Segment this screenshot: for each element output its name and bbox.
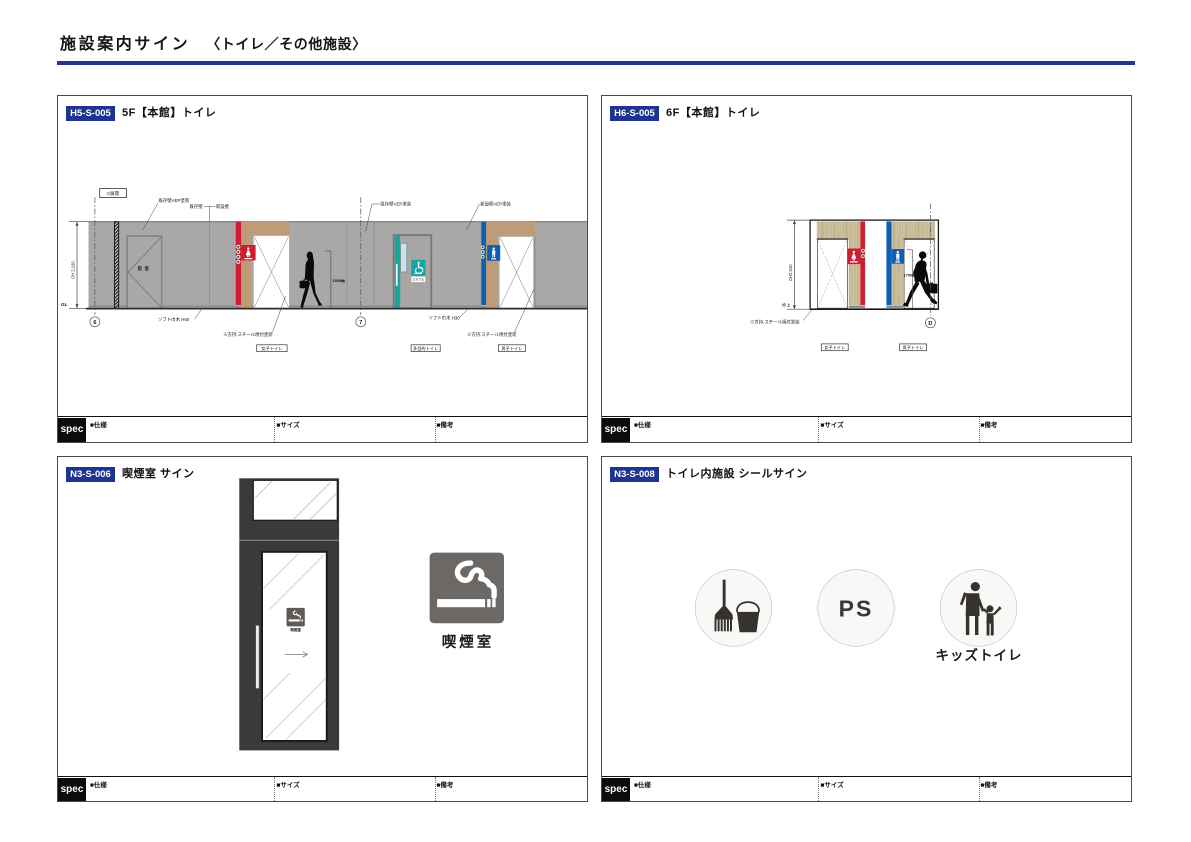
svg-text:1750㎜: 1750㎜ — [904, 273, 916, 277]
svg-text:CH2,640: CH2,640 — [788, 264, 793, 281]
svg-text:既存壁AEP塗装: 既存壁AEP塗装 — [380, 201, 411, 208]
svg-text:ソフト巾木 H30: ソフト巾木 H30 — [429, 315, 461, 322]
svg-text:喫煙室: 喫煙室 — [290, 627, 301, 632]
svg-text:※方持 スチール焼付塗装: ※方持 スチール焼付塗装 — [750, 319, 800, 326]
svg-text:男子トイレ: 男子トイレ — [903, 344, 924, 351]
svg-text:多目的トイレ: 多目的トイレ — [413, 345, 438, 352]
svg-text:7: 7 — [359, 320, 362, 326]
svg-text:女子トイレ: 女子トイレ — [261, 345, 282, 352]
svg-text:キッズトイレ: キッズトイレ — [936, 647, 1023, 663]
svg-text:D: D — [928, 321, 932, 327]
svg-text:前室: 前室 — [138, 265, 152, 272]
svg-text:既存壁AEP塗装: 既存壁AEP塗装 — [159, 197, 190, 204]
svg-text:PS: PS — [839, 596, 874, 622]
svg-text:ソフト巾木 H60: ソフト巾木 H60 — [158, 316, 190, 323]
svg-text:だれでも: だれでも — [412, 277, 424, 282]
svg-text:新設壁AEP塗装: 新設壁AEP塗装 — [480, 201, 511, 208]
svg-text:※方持:スチール焼付塗装: ※方持:スチール焼付塗装 — [223, 331, 273, 338]
svg-text:1500㎜: 1500㎜ — [333, 279, 345, 283]
svg-text:6: 6 — [93, 320, 96, 326]
svg-text:GL: GL — [61, 302, 68, 307]
svg-text:既存壁: 既存壁 — [190, 203, 204, 210]
svg-text:枠上: 枠上 — [782, 302, 790, 309]
svg-text:女子トイレ: 女子トイレ — [824, 344, 845, 351]
svg-text:CH 2,100: CH 2,100 — [71, 261, 76, 279]
svg-text:男子トイレ: 男子トイレ — [501, 345, 522, 352]
svg-text:新設壁: 新設壁 — [216, 203, 230, 210]
svg-text:※方持:スチール焼付塗装: ※方持:スチール焼付塗装 — [467, 331, 517, 338]
